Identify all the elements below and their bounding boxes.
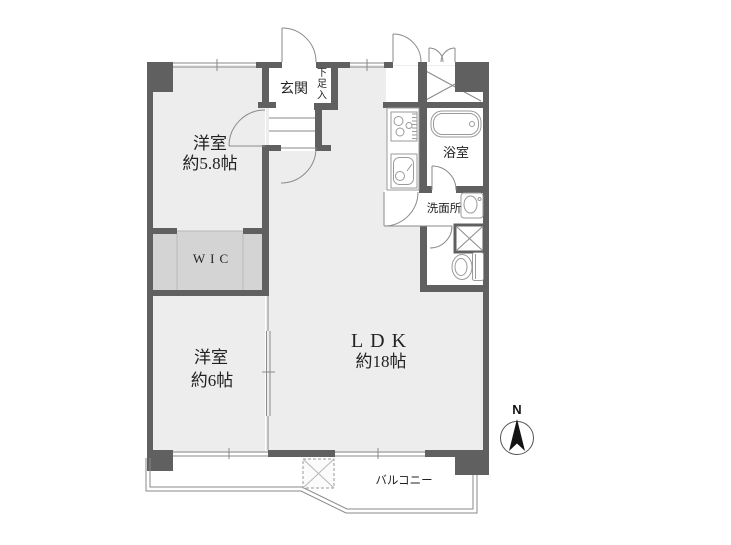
bedroom2-name: 洋室 [194,348,228,367]
wall-segment [418,62,427,108]
wall-segment [419,186,432,193]
pillar [455,62,483,92]
bedroom1-size: 約5.8帖 [182,154,237,173]
wall-segment [314,103,338,110]
compass-north-label: N [512,402,521,417]
ldk-size: 約18帖 [356,352,407,371]
wall-segment [315,110,322,151]
entrance-floor [269,65,316,151]
bathtub [431,111,481,137]
wall-segment [147,290,269,296]
wall-segment [147,62,153,457]
floor-plan-drawing: N 洋室 約5.8帖 WIC 洋室 約6帖 LDK 約18帖 玄関 下足入 浴室… [0,0,731,545]
wall-segment [262,146,269,296]
meter-box-floor [386,66,421,104]
ldk-name: LDK [351,330,413,352]
wall-segment [268,450,335,457]
wall-segment [418,102,489,108]
wall-segment [331,62,338,110]
wall-segment [420,226,427,292]
bedroom1-name: 洋室 [193,134,227,153]
wall-segment [258,102,276,108]
toilet-tank [473,253,484,281]
entrance-door[interactable] [282,28,316,62]
bathroom-label: 浴室 [443,145,469,160]
wall-segment [256,62,282,68]
wall-segment [456,186,489,193]
wash-basin [461,193,483,218]
wall-segment [383,102,421,108]
compass: N [501,402,534,455]
bedroom2-size: 約6帖 [191,371,234,390]
wall-segment [420,285,489,292]
wall-segment [147,228,177,234]
floor-plan-page: N 洋室 約5.8帖 WIC 洋室 約6帖 LDK 約18帖 玄関 下足入 浴室… [0,0,731,545]
kitchen-counter [387,108,419,190]
entrance-label: 玄関 [280,80,308,97]
toilet [452,253,484,281]
north-arrow-icon [509,419,525,451]
washroom-label: 洗面所 [427,202,462,215]
meter-box-door[interactable] [393,34,421,62]
wall-segment [384,62,393,68]
wall-segment [147,450,173,457]
stove [391,112,417,141]
balcony-label: バルコニー [375,474,432,487]
wic-label: WIC [193,251,233,266]
wall-segment [243,228,269,234]
wall-segment [419,108,427,192]
pipe-space-double-door[interactable] [429,48,455,62]
pipe-space-lower [455,225,484,252]
shoe-cabinet-label: 下足入 [317,68,327,101]
wall-segment [425,450,489,457]
